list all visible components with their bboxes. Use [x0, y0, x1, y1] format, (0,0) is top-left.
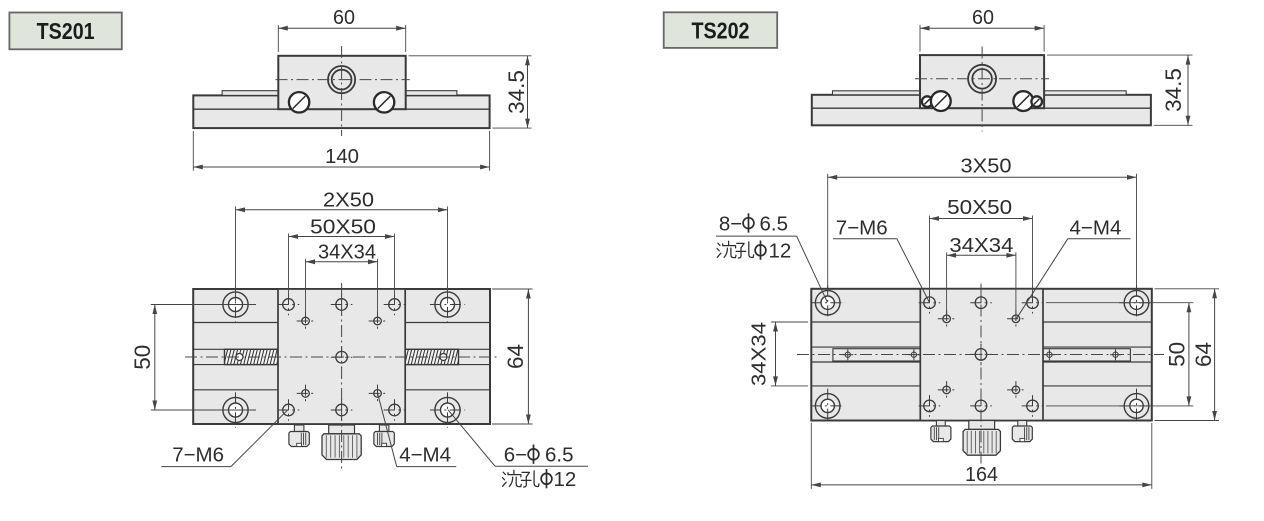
svg-text:140: 140 [325, 145, 359, 168]
svg-text:8−: 8− [719, 212, 742, 235]
svg-text:6.5: 6.5 [545, 444, 574, 467]
svg-text:TS201: TS201 [37, 18, 95, 44]
svg-text:34X34: 34X34 [949, 234, 1013, 257]
svg-text:50X50: 50X50 [947, 196, 1012, 219]
svg-text:12: 12 [554, 468, 577, 491]
svg-text:34.5: 34.5 [504, 70, 529, 114]
svg-text:3X50: 3X50 [961, 155, 1012, 178]
svg-text:64: 64 [503, 344, 528, 369]
svg-text:60: 60 [972, 6, 994, 29]
svg-text:7−M6: 7−M6 [172, 444, 224, 467]
svg-text:34X34: 34X34 [318, 240, 376, 263]
svg-text:60: 60 [333, 6, 355, 29]
svg-text:7−M6: 7−M6 [836, 217, 888, 240]
svg-text:34X34: 34X34 [748, 322, 771, 386]
svg-text:164: 164 [965, 463, 998, 486]
svg-text:2X50: 2X50 [323, 189, 374, 212]
svg-text:6.5: 6.5 [760, 212, 789, 235]
svg-text:50: 50 [1165, 342, 1190, 367]
svg-text:50: 50 [130, 345, 155, 370]
svg-text:12: 12 [769, 240, 792, 263]
svg-text:4−M4: 4−M4 [399, 444, 451, 467]
svg-text:64: 64 [1191, 342, 1216, 367]
svg-text:50X50: 50X50 [310, 216, 376, 239]
svg-text:6−: 6− [504, 444, 527, 467]
svg-text:TS202: TS202 [692, 18, 750, 44]
svg-text:4−M4: 4−M4 [1070, 217, 1122, 240]
svg-text:34.5: 34.5 [1161, 68, 1186, 112]
